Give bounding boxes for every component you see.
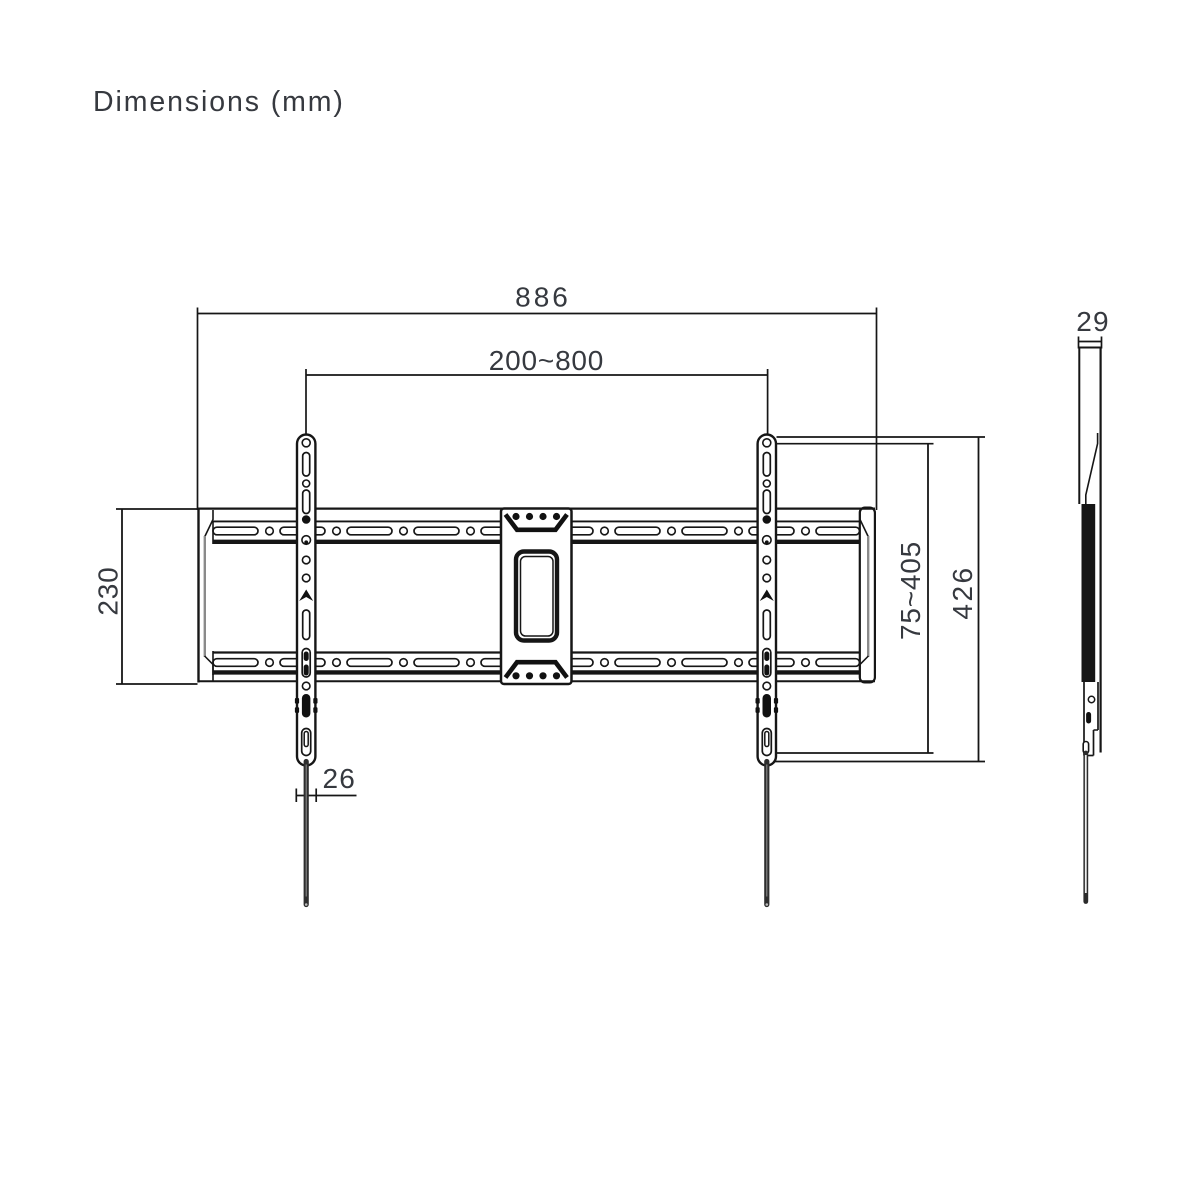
svg-text:29: 29 [1076, 306, 1110, 337]
svg-text:426: 426 [947, 565, 978, 619]
svg-text:26: 26 [323, 763, 357, 794]
svg-text:200~800: 200~800 [489, 345, 604, 376]
svg-text:Dimensions (mm): Dimensions (mm) [93, 86, 345, 118]
svg-text:886: 886 [515, 282, 571, 313]
svg-text:230: 230 [92, 566, 123, 615]
svg-text:75~405: 75~405 [895, 541, 926, 640]
